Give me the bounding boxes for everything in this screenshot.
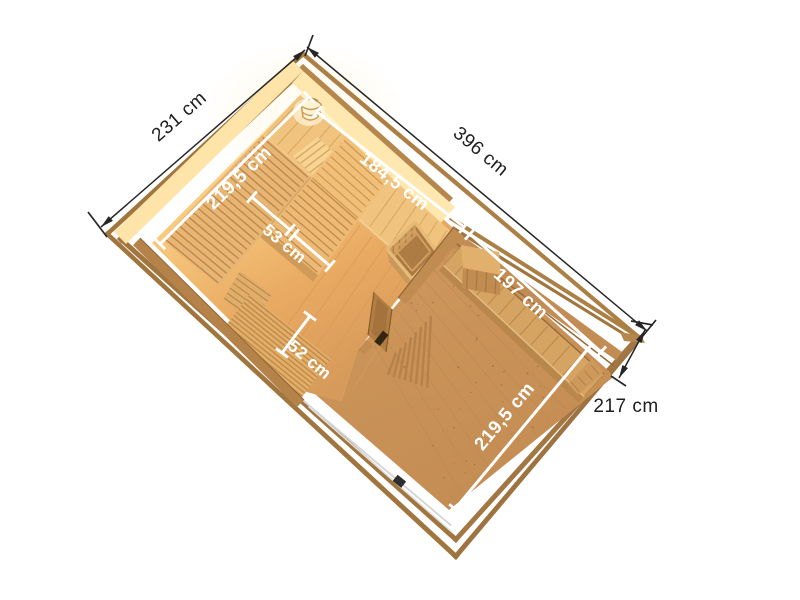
svg-text:217 cm: 217 cm <box>593 396 658 417</box>
